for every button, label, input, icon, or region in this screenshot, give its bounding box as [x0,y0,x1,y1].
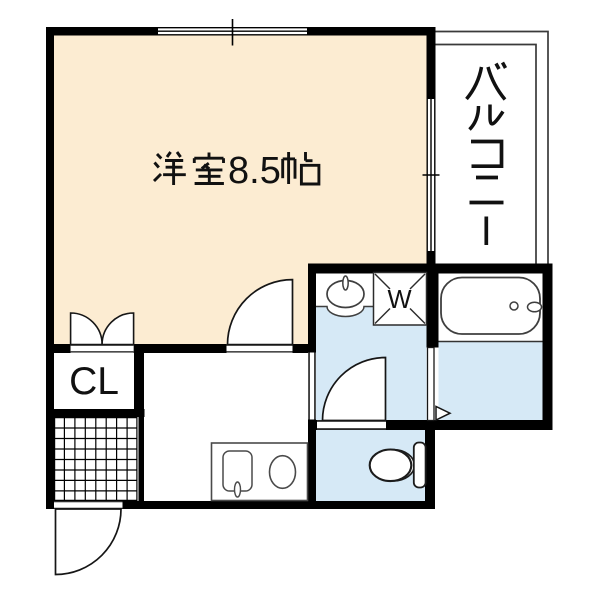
svg-text:8.5: 8.5 [228,150,281,192]
svg-text:W: W [387,286,411,314]
svg-text:CL: CL [69,360,119,403]
